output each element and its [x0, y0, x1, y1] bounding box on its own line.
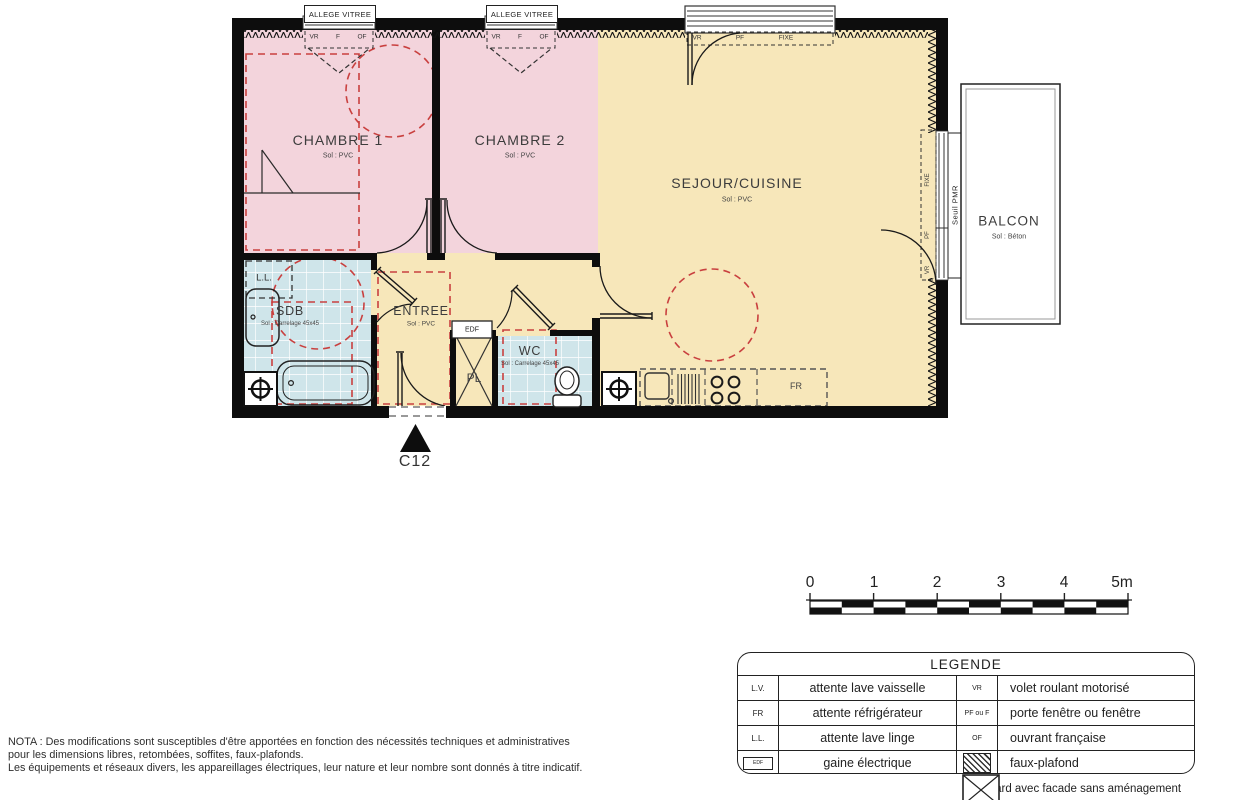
- floor-plan-page: CHAMBRE 1 Sol : PVC CHAMBRE 2 Sol : PVC …: [0, 0, 1239, 800]
- faux-plafond-hatch-icon: [963, 753, 991, 773]
- room-label-sejour: SEJOUR/CUISINE: [671, 175, 802, 191]
- legend-desc-gaine-electrique: gaine électrique: [779, 751, 956, 774]
- legend-row: L.V. attente lave vaisselle VR volet rou…: [738, 676, 1194, 701]
- room-floor-sejour: Sol : PVC: [722, 197, 752, 204]
- win-mark-fixe: FIXE: [779, 35, 793, 42]
- legend-sym-lv: L.V.: [738, 676, 779, 700]
- nota-line-2: pour les dimensions libres, retombées, s…: [8, 749, 304, 761]
- scale-tick-4: 4: [1060, 574, 1069, 592]
- room-fills: [244, 30, 936, 406]
- scale-tick-1: 1: [870, 574, 879, 592]
- nota-line-1: NOTA : Des modifications sont susceptibl…: [8, 736, 570, 748]
- legend-desc-porte-fenetre: porte fenêtre ou fenêtre: [998, 701, 1194, 725]
- legend-placard-row: placard avec facade sans aménagement: [962, 774, 1181, 795]
- room-label-balcon: BALCON: [978, 214, 1040, 229]
- win-mark-of: OF: [539, 34, 548, 41]
- unit-label: C12: [399, 453, 431, 471]
- scale-tick-5m: 5m: [1111, 574, 1133, 592]
- edf-icon-text: EDF: [753, 760, 763, 766]
- room-label-sdb: SDB: [276, 304, 304, 318]
- legend-desc-lave-linge: attente lave linge: [779, 726, 956, 750]
- win-mark-pf: PF: [736, 35, 744, 42]
- allege-vitree-box-1: ALLEGE VITREE: [304, 5, 376, 23]
- legend-sym-ll: L.L.: [738, 726, 779, 750]
- room-floor-entree: Sol : PVC: [407, 321, 435, 328]
- room-floor-wc: Sol : Carrelage 45x45: [501, 361, 559, 367]
- edf-box-icon: EDF: [743, 757, 773, 770]
- legend-desc-faux-plafond: faux-plafond: [998, 751, 1194, 774]
- legend-desc-ouvrant-francaise: ouvrant française: [998, 726, 1194, 750]
- room-label-chambre2: CHAMBRE 2: [475, 132, 566, 148]
- edf-mark: EDF: [465, 327, 479, 334]
- legend-sym-of: OF: [956, 726, 998, 750]
- win-mark-pf: PF: [925, 231, 931, 239]
- duct-crosshair-icon: [244, 372, 277, 406]
- placard-legend-label: placard avec facade sans aménagement: [974, 783, 1181, 795]
- win-mark-vr: VR: [309, 34, 318, 41]
- scale-bar: [806, 593, 1132, 614]
- scale-tick-2: 2: [933, 574, 942, 592]
- scale-tick-0: 0: [806, 574, 815, 592]
- legend-sym-vr: VR: [956, 676, 998, 700]
- room-label-wc: WC: [519, 344, 541, 358]
- legend-sym-pf-ou-f: PF ou F: [956, 701, 998, 725]
- seuil-pmr-label: Seuil PMR: [951, 185, 960, 225]
- wc-toilet: [553, 367, 581, 407]
- win-mark-f: F: [336, 34, 340, 41]
- win-mark-vr: VR: [692, 35, 701, 42]
- entrance-triangle: [400, 424, 431, 452]
- allege-vitree-box-2: ALLEGE VITREE: [486, 5, 558, 23]
- nota-line-3: Les équipements et réseaux divers, les a…: [8, 762, 582, 774]
- win-mark-f: F: [518, 34, 522, 41]
- room-floor-balcon: Sol : Béton: [992, 234, 1026, 241]
- placard-cross-icon: [962, 774, 1000, 800]
- fridge-mark: FR: [790, 381, 802, 391]
- room-floor-chambre1: Sol : PVC: [323, 153, 353, 160]
- legend-desc-refrigerateur: attente réfrigérateur: [779, 701, 956, 725]
- room-floor-chambre2: Sol : PVC: [505, 153, 535, 160]
- legend-row: FR attente réfrigérateur PF ou F porte f…: [738, 701, 1194, 726]
- win-mark-of: OF: [357, 34, 366, 41]
- room-label-chambre1: CHAMBRE 1: [293, 132, 384, 148]
- kitchen-drainer: [678, 374, 699, 404]
- duct-crosshair-icon-2: [602, 372, 636, 406]
- room-label-entree: ENTREE: [393, 304, 449, 318]
- placard-label: PL: [467, 371, 482, 385]
- win-mark-fixe: FIXE: [925, 173, 931, 186]
- legend-desc-volet-roulant: volet roulant motorisé: [998, 676, 1194, 700]
- scale-tick-3: 3: [997, 574, 1006, 592]
- balcony-outline: [961, 84, 1060, 324]
- room-floor-sdb: Sol : Carrelage 45x45: [261, 321, 319, 327]
- legend-sym-fr: FR: [738, 701, 779, 725]
- legend-row: EDF gaine électrique faux-plafond: [738, 751, 1194, 774]
- legend-title: LEGENDE: [738, 653, 1194, 676]
- win-mark-vr: VR: [925, 266, 931, 274]
- legend-desc-lave-vaisselle: attente lave vaisselle: [779, 676, 956, 700]
- legend-edf-icon: EDF: [738, 751, 779, 774]
- lave-linge-mark: L.L.: [256, 273, 272, 284]
- win-mark-vr: VR: [491, 34, 500, 41]
- legend-row: L.L. attente lave linge OF ouvrant franç…: [738, 726, 1194, 751]
- allege-vitree-text: ALLEGE VITREE: [309, 10, 371, 19]
- legend-hatch-icon-cell: [956, 751, 998, 774]
- entrance-opening: [389, 406, 446, 418]
- legend-table: LEGENDE L.V. attente lave vaisselle VR v…: [737, 652, 1195, 774]
- allege-vitree-text: ALLEGE VITREE: [491, 10, 553, 19]
